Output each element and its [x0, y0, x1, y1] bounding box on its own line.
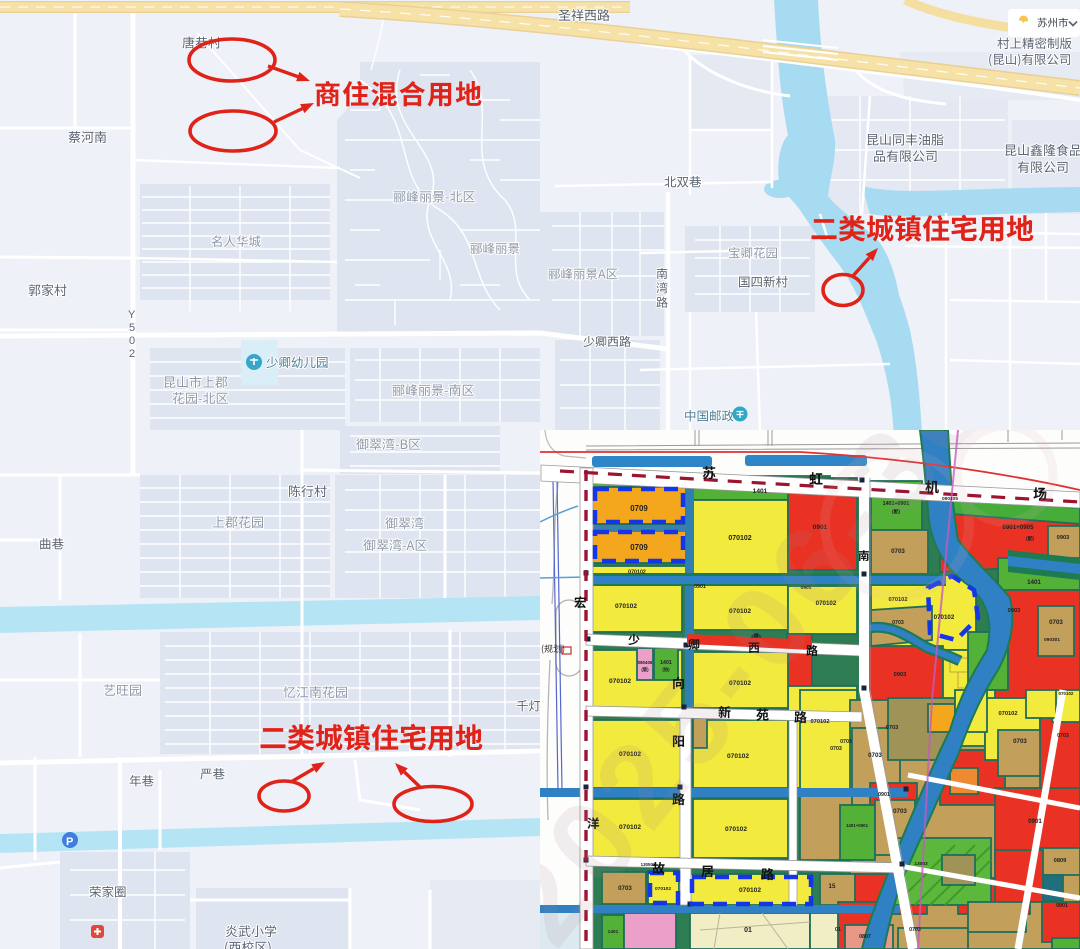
svg-text:0703: 0703	[868, 752, 882, 759]
svg-text:0703: 0703	[840, 739, 852, 745]
svg-text:0709: 0709	[630, 543, 648, 552]
svg-text:1401: 1401	[753, 488, 768, 495]
svg-text:15: 15	[829, 883, 836, 890]
svg-text:070102: 070102	[728, 535, 751, 542]
svg-text:(配): (配)	[1026, 535, 1034, 542]
svg-text:0703: 0703	[1049, 619, 1063, 626]
svg-text:0903: 0903	[1057, 535, 1070, 541]
svg-text:0901: 0901	[1028, 818, 1042, 825]
svg-text:070102: 070102	[934, 614, 955, 621]
svg-text:0807: 0807	[859, 934, 871, 940]
svg-text:070102: 070102	[811, 719, 830, 725]
svg-text:070102: 070102	[609, 678, 631, 685]
svg-text:090301: 090301	[1044, 637, 1060, 643]
svg-text:0703: 0703	[1013, 738, 1027, 745]
svg-text:0703: 0703	[892, 620, 904, 626]
svg-text:0903: 0903	[894, 672, 907, 678]
svg-text:0901: 0901	[878, 792, 890, 798]
svg-text:0901: 0901	[694, 584, 706, 590]
svg-text:070102: 070102	[655, 886, 671, 892]
svg-text:070102: 070102	[999, 711, 1018, 717]
svg-text:0703: 0703	[830, 746, 842, 752]
svg-text:P: P	[66, 836, 73, 848]
svg-text:0: 0	[129, 335, 135, 347]
svg-text:Y: Y	[128, 309, 136, 321]
svg-text:1401: 1401	[608, 929, 619, 935]
svg-text:1401: 1401	[1027, 579, 1041, 586]
svg-text:5: 5	[129, 322, 135, 334]
svg-text:0901: 0901	[1056, 903, 1068, 909]
svg-text:13003: 13003	[914, 861, 928, 867]
svg-text:0809: 0809	[1054, 858, 1067, 864]
svg-text:070102: 070102	[725, 826, 747, 833]
svg-text:0903: 0903	[1008, 608, 1021, 614]
svg-text:0703: 0703	[886, 725, 899, 731]
svg-text:1401+0901: 1401+0901	[846, 823, 869, 828]
svg-text:0703: 0703	[1057, 733, 1069, 739]
svg-text:070102: 070102	[739, 887, 761, 894]
svg-text:070102: 070102	[1059, 691, 1074, 696]
svg-text:01: 01	[744, 927, 752, 934]
svg-text:2: 2	[129, 348, 135, 360]
svg-text:01: 01	[835, 927, 841, 933]
svg-text:0703: 0703	[893, 808, 907, 815]
svg-text:0703: 0703	[909, 927, 921, 933]
svg-text:070102: 070102	[615, 603, 637, 610]
svg-text:0709: 0709	[630, 504, 648, 513]
svg-text:080406: 080406	[638, 660, 653, 665]
svg-text:070102: 070102	[628, 570, 646, 576]
